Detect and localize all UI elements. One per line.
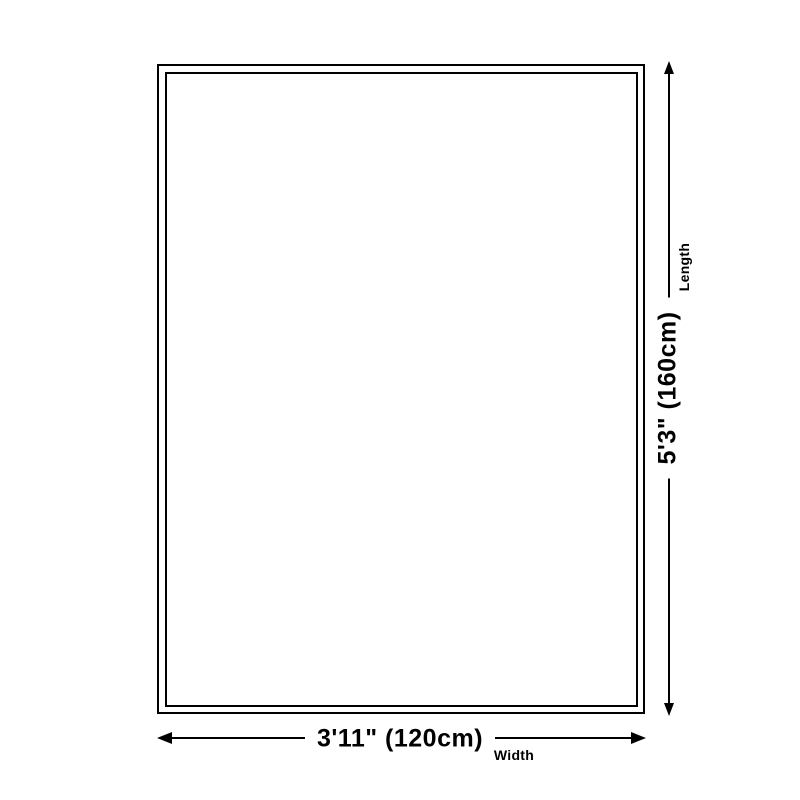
length-value-label: 5'3" (160cm)	[652, 297, 685, 478]
arrow-down-icon	[664, 703, 674, 716]
length-axis-label: Length	[676, 243, 692, 291]
rug-outline	[157, 64, 645, 714]
arrow-up-icon	[664, 61, 674, 74]
arrow-right-icon	[631, 732, 646, 744]
dimension-diagram: 5'3" (160cm) Length 3'11" (120cm) Width	[0, 0, 800, 800]
width-axis-label: Width	[494, 747, 534, 763]
rug-inner-border	[165, 72, 638, 707]
width-value-label: 3'11" (120cm)	[305, 723, 495, 756]
arrow-left-icon	[157, 732, 172, 744]
